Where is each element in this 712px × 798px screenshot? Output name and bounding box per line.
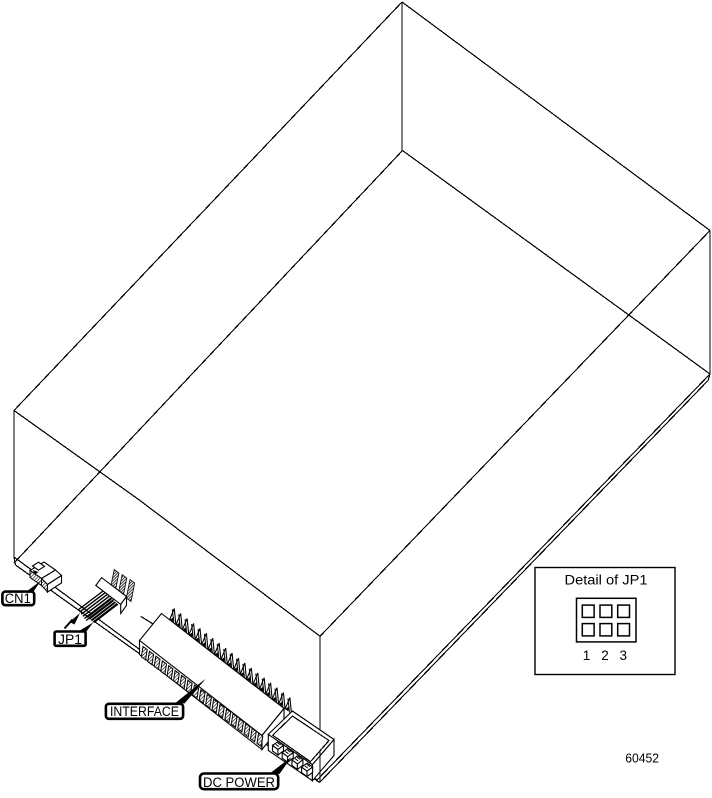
svg-text:CN1: CN1 (5, 591, 31, 606)
svg-text:INTERFACE: INTERFACE (110, 704, 179, 719)
svg-text:3: 3 (620, 648, 628, 663)
svg-text:DC POWER: DC POWER (203, 775, 275, 790)
svg-text:Detail of JP1: Detail of JP1 (565, 573, 648, 588)
svg-text:2: 2 (601, 648, 609, 663)
svg-text:60452: 60452 (625, 750, 659, 765)
svg-text:1: 1 (583, 648, 591, 663)
svg-text:JP1: JP1 (58, 632, 82, 647)
